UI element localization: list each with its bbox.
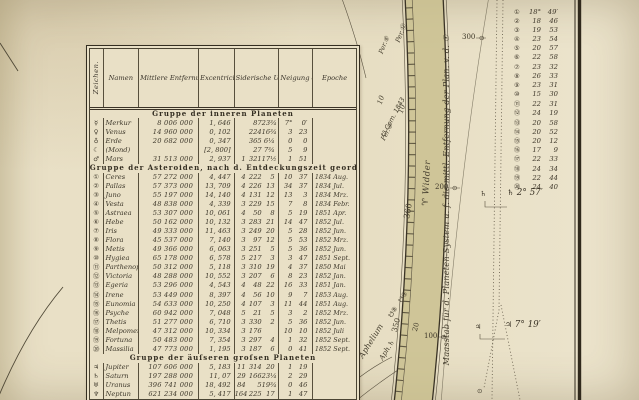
inclination-part: 5	[279, 146, 292, 155]
table-row: ♆Neptun621 234 0005, 41716422517147	[90, 390, 356, 399]
inclination: 1633	[279, 281, 313, 290]
mean-distance: 55 197 000	[139, 191, 199, 200]
period-part: 21	[262, 218, 275, 227]
orbital-period: 45610	[234, 290, 279, 299]
period-part: 330	[246, 318, 262, 327]
inclination: 32	[279, 308, 313, 317]
degree-value: 17	[525, 146, 541, 154]
epoch	[312, 381, 356, 390]
planet-symbol: ♆	[90, 390, 103, 399]
table-row: ⑧Flora45 537 0007, 140397125531852 Mrz.	[90, 236, 356, 245]
orbital-period: 52173	[234, 254, 279, 263]
planet-symbol: ⑮	[90, 299, 103, 308]
col-header-zeichen: Zeichen.	[90, 49, 103, 109]
inclination: 97	[279, 290, 313, 299]
mean-distance: 31 513 000	[139, 155, 199, 164]
period-part: 16¾	[262, 128, 275, 137]
planet-symbol: ♂	[90, 155, 103, 164]
planet-symbol: ③	[90, 191, 103, 200]
mean-distance	[139, 146, 199, 155]
inclination-part: 5	[279, 236, 292, 245]
inclination: 133	[279, 191, 313, 200]
mean-distance: 47 312 000	[139, 326, 199, 335]
table-row: ♀Venus14 960 0000, 10222416¾323	[90, 127, 356, 136]
jupiter-value: 7° 19′	[515, 320, 541, 330]
inclination-part: 8	[292, 200, 307, 209]
period-part: 164	[235, 390, 246, 399]
inclination-part: 37	[292, 263, 307, 272]
period-part: 5	[235, 309, 246, 318]
planet-name: Eunomia	[103, 299, 139, 308]
planet-name: Neptun	[103, 390, 139, 399]
degree-value: 20	[525, 44, 541, 52]
planet-name: Erde	[103, 136, 139, 145]
asteroid-number-icon: ⑧	[514, 73, 525, 80]
planet-symbol: ⑩	[90, 254, 103, 263]
mean-distance: 47 773 000	[139, 345, 199, 354]
inclination-part: 7	[292, 291, 307, 300]
longitude-list-item: ⑭2052	[514, 127, 558, 136]
inclination: 437	[279, 263, 313, 272]
planet-name: Psyche	[103, 308, 139, 317]
longitude-list-item: ④2354	[514, 35, 558, 44]
minute-value: 46	[541, 17, 558, 25]
inclination-part: 51	[292, 155, 307, 164]
table-row: ⑩Hygiea65 178 0006, 578521733471851 Sept…	[90, 254, 356, 263]
inclination-part: 3	[279, 254, 292, 263]
group-header-row: Gruppe der Asteroiden, nach d. Entdeckun…	[90, 164, 356, 173]
period-part: 310	[246, 263, 262, 272]
planet-name: Flora	[103, 236, 139, 245]
epoch: 1852 Jun.	[312, 245, 356, 254]
inclination-part: 33	[292, 281, 307, 290]
period-part: 17	[262, 390, 275, 399]
saturn-inclination-note: ♄ 2° 57′	[507, 188, 543, 198]
epoch	[312, 118, 356, 127]
inclination-part: 29	[292, 372, 307, 381]
planet-symbol: ⑥	[90, 218, 103, 227]
mean-distance: 53 449 000	[139, 290, 199, 299]
period-part: 19	[262, 263, 275, 272]
planet-symbol: ⑪	[90, 263, 103, 272]
inclination-part: 1	[279, 363, 292, 372]
degree-value: 19	[525, 26, 541, 34]
planet-name: Mars	[103, 155, 139, 164]
orbital-period: 44822	[234, 281, 279, 290]
saturn-icon: ♄	[507, 188, 514, 197]
orbital-period: 8723¾	[234, 118, 279, 127]
orbital-period: 39712	[234, 236, 279, 245]
inclination: 119	[279, 363, 313, 372]
longitude-list-item: ⑨2331	[514, 81, 558, 90]
eccentricity: 10, 250	[199, 299, 235, 308]
inclination-part: 47	[292, 254, 307, 263]
minute-value: 58	[541, 119, 558, 127]
orbital-period: 331019	[234, 263, 279, 272]
table-row: ⑦Iris49 333 00011, 4633249205281852 Jun.	[90, 227, 356, 236]
period-part: 23¼	[262, 372, 275, 381]
mean-distance: 197 288 000	[139, 372, 199, 381]
asteroid-number-icon: ⑭	[514, 127, 525, 136]
asteroid-number-icon: ⑱	[514, 164, 525, 173]
degree-value: 20	[525, 137, 541, 145]
eccentricity: 5, 183	[199, 363, 235, 372]
period-part: 84	[235, 381, 246, 390]
planet-name: Jupiter	[103, 363, 139, 372]
period-part: 3	[262, 300, 275, 309]
planet-symbol: ⑳	[90, 345, 103, 354]
minute-value: 52	[541, 128, 558, 136]
longitude-list-item: ⑯179	[514, 145, 558, 154]
planet-symbol: ♅	[90, 381, 103, 390]
longitude-list-item: ①18°49′	[514, 8, 558, 17]
inclination-part: 0	[279, 381, 292, 390]
neat-line-thick	[578, 0, 581, 400]
longitude-list-item: ⑱2434	[514, 164, 558, 173]
planet-name: Egeria	[103, 281, 139, 290]
table-row: ⑲Fortuna50 483 0007, 354329741321852 Sep…	[90, 336, 356, 345]
minute-value: 57	[541, 44, 558, 52]
minute-value: 44	[541, 174, 558, 182]
inclination-part: 4	[279, 263, 292, 272]
period-part: 4	[262, 336, 275, 345]
planet-symbol: ⑧	[90, 236, 103, 245]
period-part: 11	[235, 363, 246, 372]
jupiter-icon: ♃	[505, 320, 512, 329]
mean-distance: 49 333 000	[139, 227, 199, 236]
table-row: ⑨Metis49 366 0006, 063325155361852 Jun.	[90, 245, 356, 254]
epoch: 1851 Apr.	[312, 209, 356, 218]
mean-distance: 57 373 000	[139, 182, 199, 191]
inclination-part: 9	[279, 291, 292, 300]
period-part: 229	[246, 200, 262, 209]
planet-name: (Mond)	[103, 146, 139, 155]
minute-value: 33	[541, 72, 558, 80]
table-row: ☿Merkur8 006 0001, 6468723¾7°0′	[90, 118, 356, 127]
longitude-list-item: ⑩1530	[514, 90, 558, 99]
degree-value: 18	[525, 17, 541, 25]
degree-value: 22	[525, 53, 541, 61]
orbital-period: 16422517	[234, 390, 279, 399]
degree-value: 15	[525, 90, 541, 98]
epoch: 1851 Aug.	[312, 299, 356, 308]
longitude-list-item: ⑲2244	[514, 173, 558, 182]
scale-tick-number: 200	[435, 183, 448, 191]
table-row: ⑪Parthenope50 312 0005, 1183310194371850…	[90, 263, 356, 272]
orbital-period: 5215	[234, 308, 279, 317]
period-part: 50	[246, 209, 262, 218]
eccentricity: 10, 132	[199, 218, 235, 227]
planet-name: Thetis	[103, 317, 139, 326]
table-row: ③Juno55 197 00014, 1404131121331834 Mrz.	[90, 191, 356, 200]
epoch: 1852 Mrz.	[312, 308, 356, 317]
mean-distance: 49 366 000	[139, 245, 199, 254]
eccentricity: 11, 463	[199, 227, 235, 236]
orbital-period: 4508	[234, 209, 279, 218]
inclination-part: 1	[279, 336, 292, 345]
planet-name: Juno	[103, 191, 139, 200]
period-part: 3	[235, 336, 246, 345]
planet-name: Hebe	[103, 218, 139, 227]
inclination-part: 32	[292, 336, 307, 345]
period-part: 224	[246, 128, 262, 137]
period-part: 297	[246, 336, 262, 345]
period-part: 1	[235, 155, 246, 164]
orbital-period: 328321	[234, 218, 279, 227]
longitude-list-item: ⑮2012	[514, 136, 558, 145]
eccentricity: 4, 447	[199, 173, 235, 182]
orbital-period: 1131420	[234, 363, 279, 372]
table-row: ⑯Psyche60 942 0007, 0485215321852 Mrz.	[90, 308, 356, 317]
mean-distance: 50 483 000	[139, 336, 199, 345]
aries-icon: ♈	[421, 197, 431, 206]
degree-value: 20	[525, 119, 541, 127]
epoch	[312, 127, 356, 136]
table-row: ⑰Thetis51 277 0006, 710333025361852 Jun.	[90, 317, 356, 326]
minute-value: 9	[541, 146, 558, 154]
period-part: 4	[235, 173, 246, 182]
jupiter-marker-icon: ♃	[475, 323, 481, 331]
eccentricity: 7, 048	[199, 308, 235, 317]
period-part: 3	[262, 254, 275, 263]
orbital-period: 277¾	[234, 146, 279, 155]
orbital-period: 32076	[234, 272, 279, 281]
planet-name: Melpomene	[103, 326, 139, 335]
asteroid-number-icon: ⑬	[514, 118, 525, 127]
minute-value: 53	[541, 26, 558, 34]
epoch: 1852 Jan.	[312, 272, 356, 281]
period-part: 7¾	[262, 146, 275, 155]
orbital-period: 2916623¼	[234, 372, 279, 381]
saturn-marker-icon: ♄	[480, 190, 486, 198]
epoch	[312, 372, 356, 381]
period-part: 3	[235, 345, 246, 354]
period-part: 20	[262, 363, 275, 372]
period-part: 17½	[262, 155, 275, 164]
orbital-period: 31876	[234, 345, 279, 354]
period-part: 222	[246, 173, 262, 182]
eccentricity: 8, 397	[199, 290, 235, 299]
planet-name: Ceres	[103, 173, 139, 182]
table-row: ♃Jupiter107 606 0005, 1831131420119	[90, 363, 356, 372]
longitude-list-item: ⑪2231	[514, 99, 558, 108]
mean-distance: 8 006 000	[139, 118, 199, 127]
table-row: ⑫Victoria48 288 00010, 552320768231852 J…	[90, 272, 356, 281]
orbital-period: 422613	[234, 182, 279, 191]
orbital-period: 324920	[234, 227, 279, 236]
planet-symbol: ♁	[90, 136, 103, 145]
planet-symbol: ♃	[90, 363, 103, 372]
eccentricity: 0, 102	[199, 127, 235, 136]
degree-value: 26	[525, 72, 541, 80]
inclination: 553	[279, 236, 313, 245]
mean-distance: 53 296 000	[139, 281, 199, 290]
table-row: ①Ceres57 272 0004, 4474222510371834 Aug.	[90, 173, 356, 182]
inclination: 1447	[279, 218, 313, 227]
saturn-value: 2° 57′	[517, 188, 543, 198]
period-part: 4	[235, 182, 246, 191]
asteroid-number-icon: ⑩	[514, 91, 525, 98]
orbital-period: 132117½	[234, 155, 279, 164]
minute-value: 40	[541, 183, 558, 191]
scale-tick-number: 300	[462, 33, 475, 41]
inclination: 041	[279, 345, 313, 354]
minute-value: 32	[541, 63, 558, 71]
longitude-list-item: ⑰2233	[514, 154, 558, 163]
mean-distance: 57 272 000	[139, 173, 199, 182]
inclination-part: 7	[279, 200, 292, 209]
group-title: Gruppe der Asteroiden, nach d. Entdeckun…	[90, 164, 356, 173]
planet-symbol: ♄	[90, 372, 103, 381]
mean-distance: 50 162 000	[139, 218, 199, 227]
asteroid-number-icon: ⑫	[514, 108, 525, 117]
mean-distance: 60 942 000	[139, 308, 199, 317]
epoch: 1853 Aug.	[312, 290, 356, 299]
inclination: 3437	[279, 182, 313, 191]
eccentricity: 1, 646	[199, 118, 235, 127]
scale-tick-number: 100	[424, 332, 437, 340]
mean-distance: 45 537 000	[139, 236, 199, 245]
inclination-part: 23	[292, 272, 307, 281]
inclination-part: 47	[292, 390, 307, 399]
period-part: 19¾	[262, 381, 275, 390]
inclination-part: 53	[292, 236, 307, 245]
period-part: 251	[246, 245, 262, 254]
mean-distance: 50 312 000	[139, 263, 199, 272]
longitude-list-item: ⑧2633	[514, 72, 558, 81]
dotted-line-2	[484, 0, 503, 388]
inclination-part: 0	[279, 137, 292, 146]
period-part: 4	[235, 191, 246, 200]
col-header-namen: Namen	[103, 49, 139, 109]
epoch: 1850 Mai	[312, 263, 356, 272]
period-part: 4	[235, 300, 246, 309]
asteroid-number-icon: ⑥	[514, 54, 525, 61]
eccentricity: 1, 195	[199, 345, 235, 354]
period-part: 12	[262, 191, 275, 200]
mean-distance: 621 234 000	[139, 390, 199, 399]
minute-value: 34	[541, 165, 558, 173]
period-part: 226	[246, 182, 262, 191]
table-row: ♅Uranus396 741 00018, 49284519¾046	[90, 381, 356, 390]
inclination-part: 7°	[279, 119, 292, 128]
table-row: ④Vesta48 838 0004, 339322915781834 Febr.	[90, 200, 356, 209]
period-part: 56	[246, 291, 262, 300]
degree-value: 18°	[525, 8, 541, 16]
asteroid-number-icon: ⑮	[514, 136, 525, 145]
orbital-period: 33302	[234, 317, 279, 326]
period-part: 3	[235, 245, 246, 254]
aries-name: Widder	[421, 160, 433, 195]
inclination-part: 5	[279, 209, 292, 218]
inclination-part: 28	[292, 227, 307, 236]
mean-distance: 54 633 000	[139, 299, 199, 308]
planet-symbol: ⑨	[90, 245, 103, 254]
inclination: 229	[279, 372, 313, 381]
period-part: 321	[246, 155, 262, 164]
eccentricity: 4, 339	[199, 200, 235, 209]
col-header-umlaufszeit: Siderische Umlaufszeit in Jahr, Tag, Std…	[234, 49, 279, 109]
sun-symbol-marker: ⊙	[479, 34, 484, 42]
eccentricity: 14, 140	[199, 191, 235, 200]
inclination: 151	[279, 155, 313, 164]
period-part: 5	[246, 381, 262, 390]
planet-symbol: ⑰	[90, 317, 103, 326]
mean-distance: 20 682 000	[139, 136, 199, 145]
degree-value: 22	[525, 174, 541, 182]
dotted-line-1	[492, 0, 497, 400]
eccentricity: 2, 937	[199, 155, 235, 164]
epoch: 1852 Sept.	[312, 336, 356, 345]
inclination-part: 37	[292, 182, 307, 191]
table-row: ⑱Melpomene47 312 00010, 334317610101852 …	[90, 326, 356, 335]
eccentricity: 6, 063	[199, 245, 235, 254]
minute-value: 49′	[541, 8, 558, 16]
epoch: 1852 Jun.	[312, 227, 356, 236]
minute-value: 19	[541, 109, 558, 117]
eccentricity: [2, 800]	[199, 146, 235, 155]
jupiter-leader-line	[480, 334, 505, 339]
inclination-part: 0	[292, 137, 307, 146]
inclination-part: 41	[292, 345, 307, 354]
sun-symbol-marker: ⊙	[441, 333, 446, 341]
period-part: 48	[246, 281, 262, 290]
inclination: 536	[279, 245, 313, 254]
planet-symbol: ④	[90, 200, 103, 209]
degree-value: 20	[525, 128, 541, 136]
planet-symbol: ☾	[90, 146, 103, 155]
orbital-period: 41073	[234, 299, 279, 308]
planet-table: Zeichen. Namen Mittlere Entfernung der P…	[86, 45, 360, 400]
eccentricity: 10, 552	[199, 272, 235, 281]
inclination: 1037	[279, 173, 313, 182]
planet-name: Merkur	[103, 118, 139, 127]
period-part: 5	[262, 173, 275, 182]
inclination-part: 0′	[292, 119, 307, 128]
period-part: 5	[235, 254, 246, 263]
inclination-part: 37	[292, 173, 307, 182]
planet-name: Parthenope	[103, 263, 139, 272]
table-row: ⑬Egeria53 296 0004, 5434482216331851 Jan…	[90, 281, 356, 290]
epoch: 1852 Sept.	[312, 345, 356, 354]
inclination-part: 5	[279, 318, 292, 327]
atlas-plate: Zeichen. Namen Mittlere Entfernung der P…	[0, 0, 639, 400]
asteroid-number-icon: ⑦	[514, 64, 525, 71]
inclination: 132	[279, 336, 313, 345]
mean-distance: 48 288 000	[139, 272, 199, 281]
eccentricity: 10, 061	[199, 209, 235, 218]
longitude-list-item: ②1846	[514, 17, 558, 26]
epoch: 1852 Juli	[312, 326, 356, 335]
period-part: 5	[262, 245, 275, 254]
group-title: Gruppe der äuſseren groſsen Planeten	[90, 354, 356, 363]
col-header-zeichen-label: Zeichen.	[92, 61, 100, 94]
inclination-part: 3	[292, 191, 307, 200]
period-part: 107	[246, 300, 262, 309]
planet-symbol: ⑬	[90, 281, 103, 290]
inclination-part: 34	[279, 182, 292, 191]
orbital-period: 413112	[234, 191, 279, 200]
inclination-part: 36	[292, 245, 307, 254]
period-part: 3	[235, 318, 246, 327]
longitude-list-item: ⑤2057	[514, 44, 558, 53]
planet-symbol: ⑦	[90, 227, 103, 236]
planet-symbol: ☿	[90, 118, 103, 127]
degree-value: 22	[525, 100, 541, 108]
col-header-entfernung: Mittlere Entfernung der Planeten v.d.☉ i…	[139, 49, 199, 109]
period-part: 12	[262, 236, 275, 245]
asteroid-number-icon: ②	[514, 18, 525, 25]
